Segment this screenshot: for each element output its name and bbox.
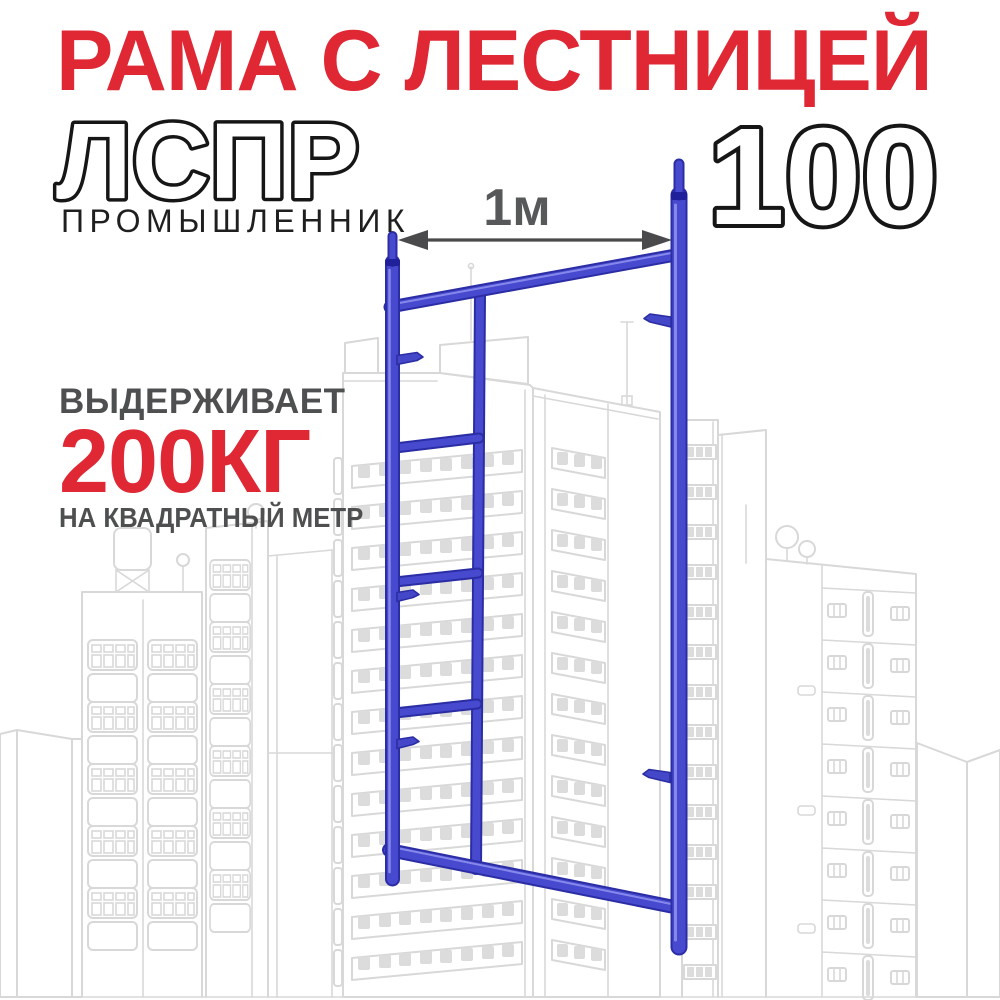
city-background	[0, 264, 1000, 1000]
capacity-value: 200КГ	[59, 427, 390, 497]
product-banner: РАМА С ЛЕСТНИЦЕЙ ЛСПР ПРОМЫШЛЕННИК 100 1…	[0, 0, 1000, 1000]
central-tower	[334, 264, 660, 998]
brand-name: ПРОМЫШЛЕННИК	[61, 203, 410, 240]
left-post	[385, 236, 400, 879]
water-tower	[114, 528, 151, 592]
size-number-outline: 100	[700, 106, 970, 242]
capacity-unit: НА КВАДРАТНЫЙ МЕТР	[59, 503, 363, 533]
size-number-text: 100	[708, 106, 938, 242]
ladder-rail	[476, 293, 480, 869]
building-window-panels	[210, 560, 250, 932]
right-post	[671, 164, 687, 947]
capacity-block: ВЫДЕРЖИВАЕТ 200КГ НА КВАДРАТНЫЙ МЕТР	[59, 383, 390, 533]
dimension-label: 1м	[402, 178, 632, 238]
top-crossbar	[390, 252, 681, 307]
roof-lamp	[177, 554, 189, 592]
roof-lamps	[776, 526, 815, 564]
page-title: РАМА С ЛЕСТНИЦЕЙ	[56, 18, 956, 104]
